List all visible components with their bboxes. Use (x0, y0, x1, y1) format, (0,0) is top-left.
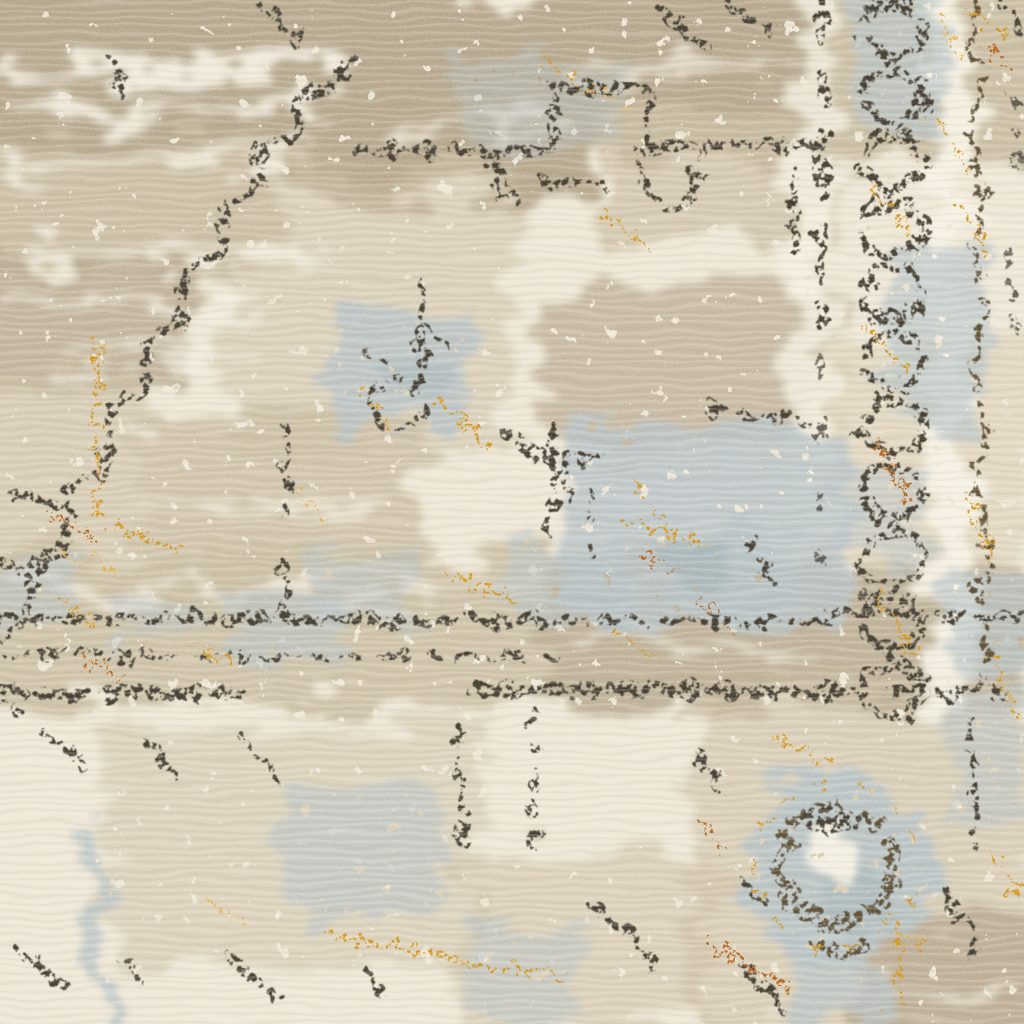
rug-canvas: Close-up of a distressed vintage-style o… (0, 0, 1024, 1024)
rug-close-up-photo: Close-up of a distressed vintage-style o… (0, 0, 1024, 1024)
pile-grain-overlay (0, 0, 1024, 1024)
